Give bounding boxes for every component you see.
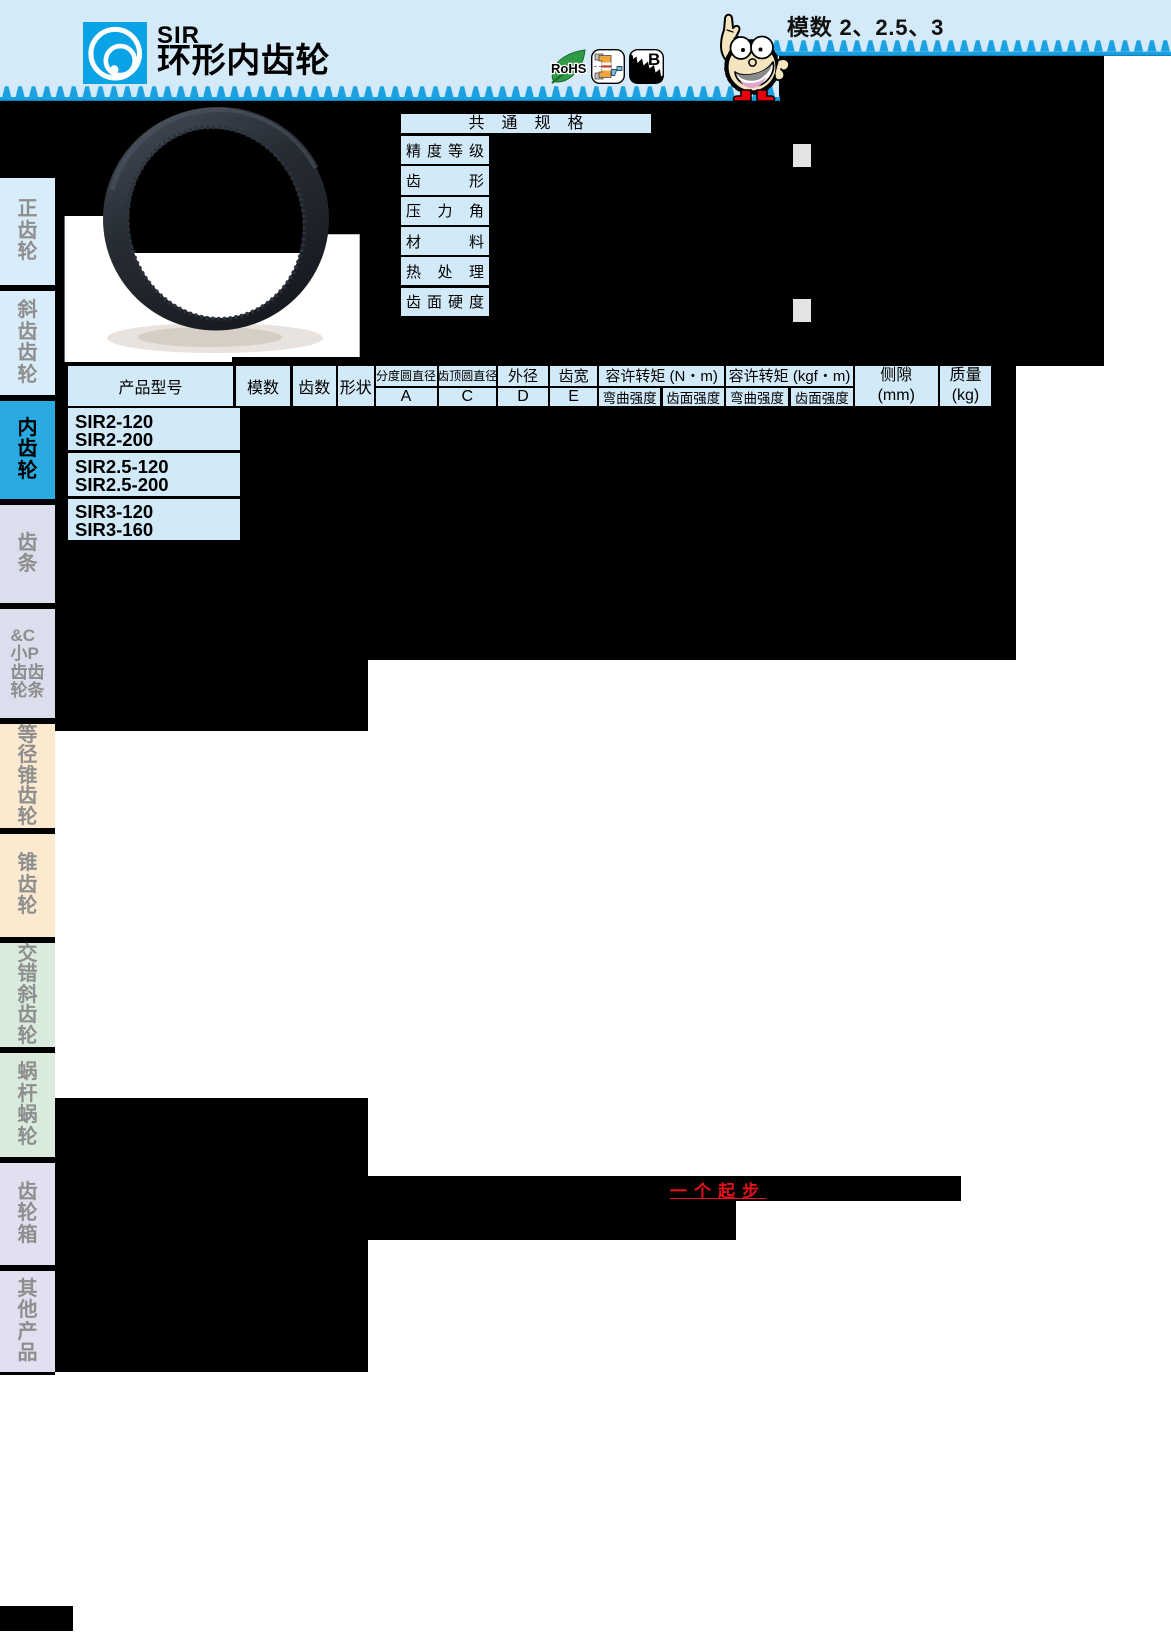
svg-text:B: B [648, 50, 660, 69]
svg-text:RoHS: RoHS [551, 61, 587, 76]
